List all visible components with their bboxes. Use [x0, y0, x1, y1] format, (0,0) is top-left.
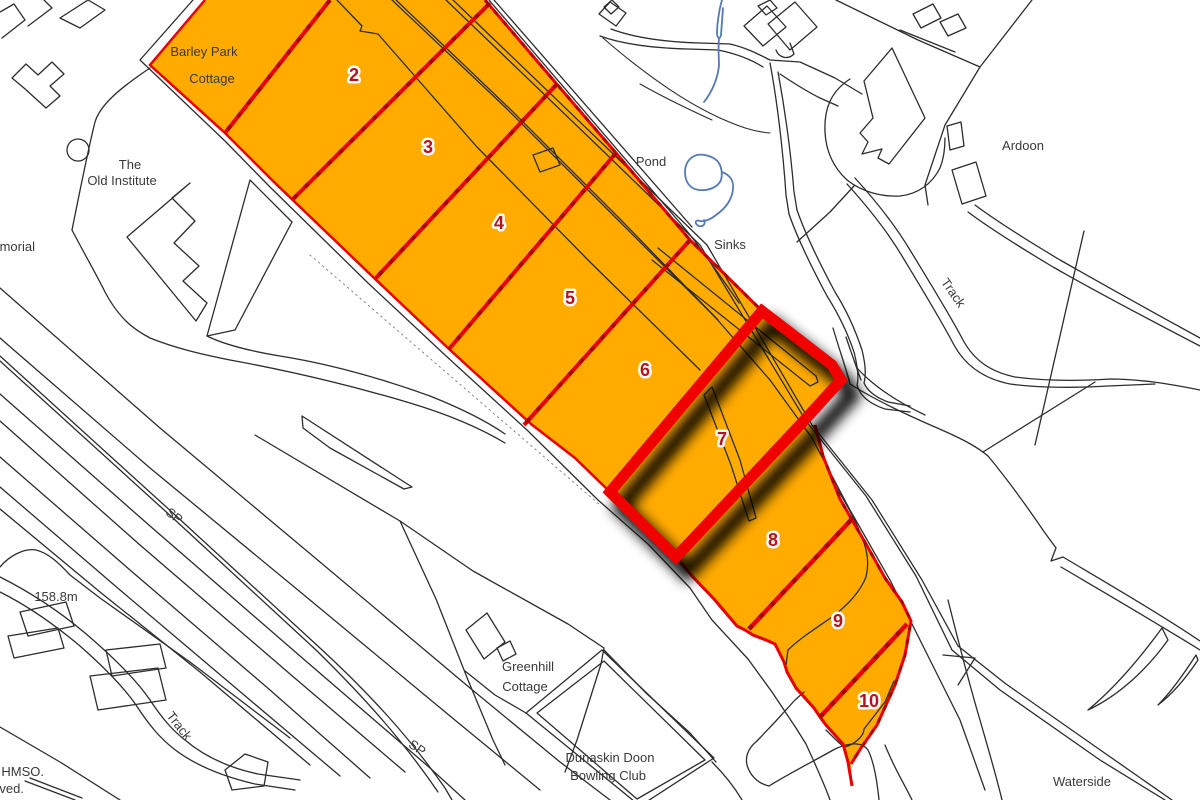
svg-text:Cottage: Cottage: [502, 679, 548, 694]
svg-text:Memorial: Memorial: [0, 239, 35, 254]
svg-text:The: The: [119, 157, 141, 172]
svg-text:Barley Park: Barley Park: [170, 44, 238, 59]
svg-text:Pond: Pond: [636, 154, 666, 169]
svg-text:8: 8: [768, 530, 778, 550]
svg-text:4: 4: [494, 213, 504, 233]
svg-text:of HMSO.: of HMSO.: [0, 764, 44, 779]
svg-text:9: 9: [833, 611, 843, 631]
svg-text:Sinks: Sinks: [714, 237, 746, 252]
svg-text:6: 6: [640, 360, 650, 380]
svg-text:Bowling Club: Bowling Club: [570, 768, 646, 783]
svg-text:2: 2: [349, 65, 359, 85]
svg-text:158.8m: 158.8m: [34, 589, 77, 604]
svg-text:5: 5: [565, 288, 575, 308]
svg-text:Ardoon: Ardoon: [1002, 138, 1044, 153]
svg-text:Cottage: Cottage: [189, 71, 235, 86]
svg-text:served.: served.: [0, 781, 24, 796]
svg-text:Waterside: Waterside: [1053, 774, 1111, 789]
svg-text:10: 10: [859, 691, 879, 711]
svg-text:Greenhill: Greenhill: [502, 659, 554, 674]
svg-text:3: 3: [423, 137, 433, 157]
svg-text:Old Institute: Old Institute: [87, 173, 156, 188]
svg-text:7: 7: [717, 429, 727, 449]
svg-text:Dunaskin Doon: Dunaskin Doon: [566, 750, 655, 765]
